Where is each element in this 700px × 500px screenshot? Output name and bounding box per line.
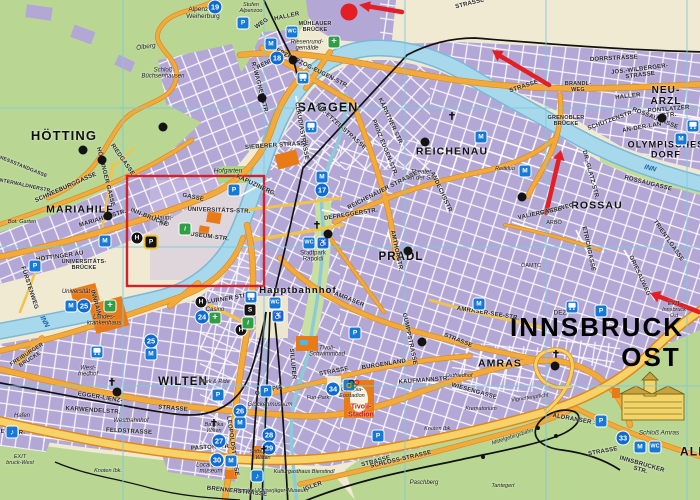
parking-icon: P bbox=[30, 261, 41, 272]
tram-stop-icon: M bbox=[520, 166, 531, 177]
stop-number-badge: 34 bbox=[327, 383, 340, 396]
bus-icon bbox=[567, 302, 578, 313]
poi-dot bbox=[104, 212, 113, 221]
poi-dot bbox=[258, 94, 267, 103]
bus-icon bbox=[92, 347, 103, 358]
poi-dot bbox=[658, 114, 667, 123]
parking-icon: P bbox=[350, 328, 361, 339]
parking-icon: P bbox=[238, 18, 249, 29]
poi-dot bbox=[421, 138, 430, 147]
tram-stop-icon: M bbox=[474, 299, 485, 310]
bus-icon bbox=[246, 292, 257, 303]
stop-number-badge: 25 bbox=[145, 335, 158, 348]
parking-icon: P bbox=[261, 386, 272, 397]
map-icons-layer: 19PMWC18+MMMWC♿M17iHPPMPM25+25MH24+HSiWC… bbox=[0, 0, 700, 500]
parking-icon: P bbox=[373, 431, 384, 442]
wheelchair-icon: ♿ bbox=[318, 238, 329, 249]
parking-icon: P bbox=[596, 416, 607, 427]
church-cross-icon: ✝ bbox=[107, 378, 118, 389]
hospital-icon: + bbox=[105, 301, 116, 312]
poi-dot bbox=[79, 146, 88, 155]
parking-icon: P bbox=[213, 390, 224, 401]
stop-number-badge: 24 bbox=[196, 311, 209, 324]
bus-icon bbox=[306, 122, 317, 133]
poi-dot bbox=[551, 362, 560, 371]
tram-stop-icon: M bbox=[317, 172, 328, 183]
church-cross-icon: ✝ bbox=[209, 419, 220, 430]
church-cross-icon: ✝ bbox=[312, 221, 323, 232]
tram-stop-icon: M bbox=[635, 442, 646, 453]
tram-stop-icon: M bbox=[100, 236, 111, 247]
hospital-icon: + bbox=[329, 37, 340, 48]
stop-number-badge: 26 bbox=[234, 405, 247, 418]
tram-stop-icon: M bbox=[266, 39, 277, 50]
haltestelle-icon: H bbox=[196, 297, 207, 308]
poi-dot bbox=[159, 123, 168, 132]
tram-stop-icon: M bbox=[226, 456, 237, 467]
tram-stop-icon: M bbox=[235, 418, 246, 429]
tram-stop-icon: M bbox=[146, 349, 157, 360]
info-icon: i bbox=[180, 224, 191, 235]
stop-number-badge: 17 bbox=[316, 184, 329, 197]
haltestelle-icon: H bbox=[132, 233, 143, 244]
poi-dot bbox=[324, 230, 333, 239]
stop-number-badge: 27 bbox=[213, 435, 226, 448]
bus-icon bbox=[298, 73, 309, 84]
poi-dot bbox=[404, 247, 413, 256]
stop-number-badge: 25 bbox=[78, 300, 91, 313]
stop-number-badge: 28 bbox=[263, 429, 276, 442]
tram-stop-icon: M bbox=[476, 132, 487, 143]
wc-icon: WC bbox=[650, 442, 661, 453]
bus-icon bbox=[688, 121, 699, 132]
parking-garage-icon: P bbox=[146, 237, 157, 248]
poi-dot bbox=[289, 56, 298, 65]
church-cross-icon: ✝ bbox=[259, 446, 270, 457]
church-cross-icon: ✝ bbox=[447, 112, 458, 123]
poi-dot bbox=[518, 193, 527, 202]
tram-stop-icon: M bbox=[66, 301, 77, 312]
tram-stop-icon: M bbox=[676, 134, 687, 145]
poi-dot bbox=[418, 338, 427, 347]
olympic-rings-icon bbox=[344, 380, 355, 391]
music-venue-icon: ♪ bbox=[7, 427, 18, 438]
stop-number-badge: 19 bbox=[209, 1, 222, 14]
music-venue-icon: ♪ bbox=[252, 471, 263, 482]
innsbruck-city-map: INNSBRUCKOSTHÖTTINGMARIAHILFSAGGENREICHE… bbox=[0, 0, 700, 500]
sbahn-icon: S bbox=[245, 305, 256, 316]
wheelchair-icon: ♿ bbox=[273, 311, 284, 322]
info-icon: i bbox=[243, 318, 254, 329]
wc-icon: WC bbox=[270, 298, 281, 309]
stop-number-badge: 18 bbox=[271, 52, 284, 65]
wc-icon: WC bbox=[304, 238, 315, 249]
hospital-icon: + bbox=[210, 313, 221, 324]
wc-icon: WC bbox=[287, 27, 298, 38]
poi-dot bbox=[113, 388, 122, 397]
parking-icon: P bbox=[596, 306, 607, 317]
red-dot-marker bbox=[341, 4, 358, 21]
stop-number-badge: 33 bbox=[617, 432, 630, 445]
parking-icon: P bbox=[229, 185, 240, 196]
church-cross-icon: ✝ bbox=[551, 350, 562, 361]
stop-number-badge: 30 bbox=[211, 454, 224, 467]
poi-dot bbox=[98, 156, 107, 165]
